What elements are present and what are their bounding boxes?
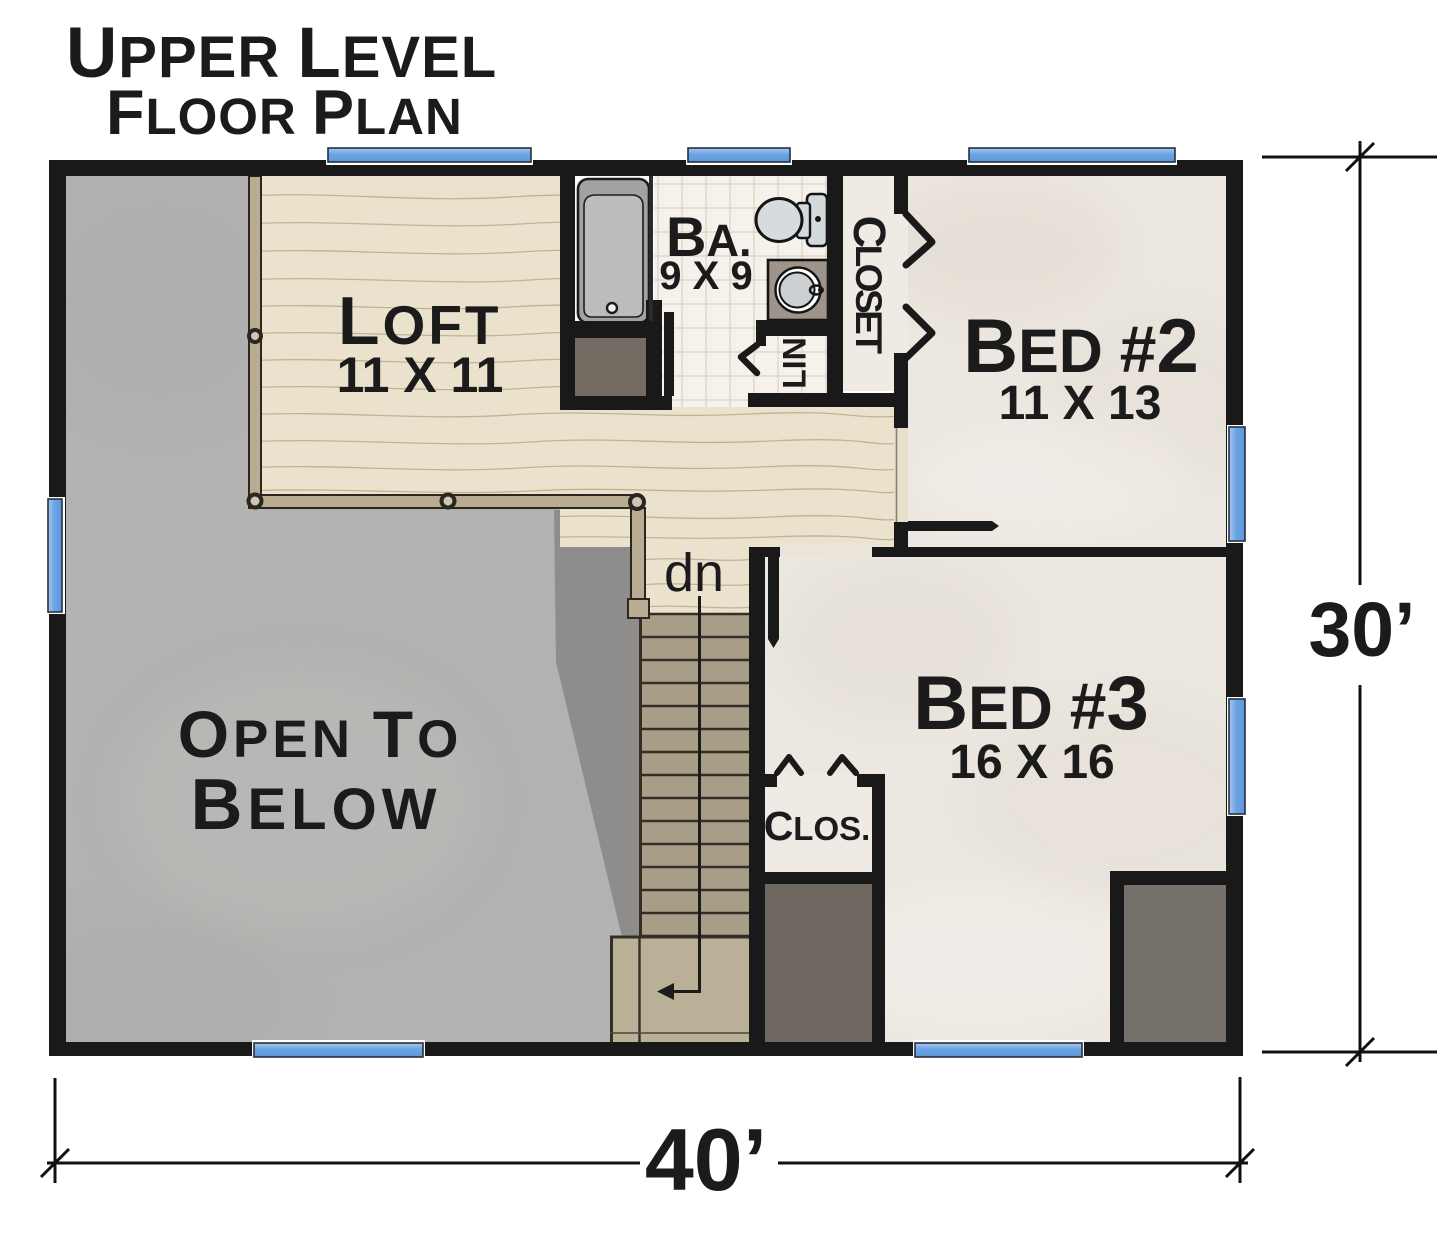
- svg-text:CLOS.: CLOS.: [764, 803, 871, 849]
- svg-text:CLOSET: CLOSET: [844, 216, 895, 355]
- svg-text:9 X 9: 9 X 9: [659, 254, 752, 298]
- svg-text:BED #3: BED #3: [913, 661, 1149, 746]
- svg-text:16 X 16: 16 X 16: [949, 736, 1114, 789]
- svg-text:11 X 11: 11 X 11: [337, 347, 504, 403]
- svg-text:30’: 30’: [1308, 587, 1415, 673]
- svg-text:11 X 13: 11 X 13: [999, 377, 1162, 430]
- svg-text:40’: 40’: [645, 1110, 767, 1209]
- svg-text:BELOW: BELOW: [191, 765, 442, 845]
- svg-text:FLOOR PLAN: FLOOR PLAN: [106, 78, 463, 148]
- svg-text:dn: dn: [664, 543, 724, 603]
- svg-text:LIN: LIN: [776, 337, 812, 389]
